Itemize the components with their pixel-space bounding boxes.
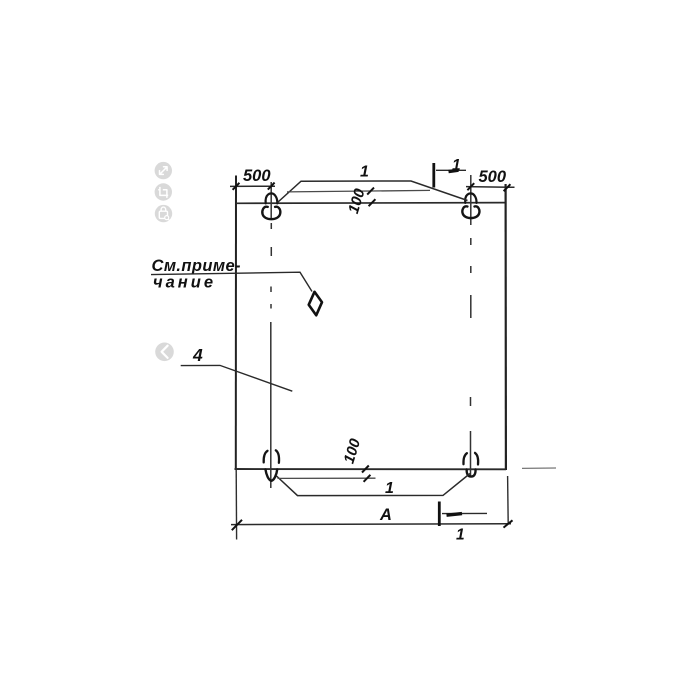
svg-text:чание: чание	[153, 274, 216, 292]
svg-text:4: 4	[192, 345, 203, 365]
svg-text:500: 500	[479, 168, 507, 186]
svg-text:1: 1	[385, 480, 394, 497]
svg-text:1: 1	[456, 527, 465, 544]
svg-text:А: А	[379, 506, 392, 524]
svg-text:1: 1	[360, 164, 369, 181]
svg-text:100: 100	[341, 436, 365, 466]
svg-text:1: 1	[452, 157, 461, 174]
svg-text:500: 500	[243, 167, 271, 185]
svg-text:См.приме-: См.приме-	[152, 257, 242, 275]
